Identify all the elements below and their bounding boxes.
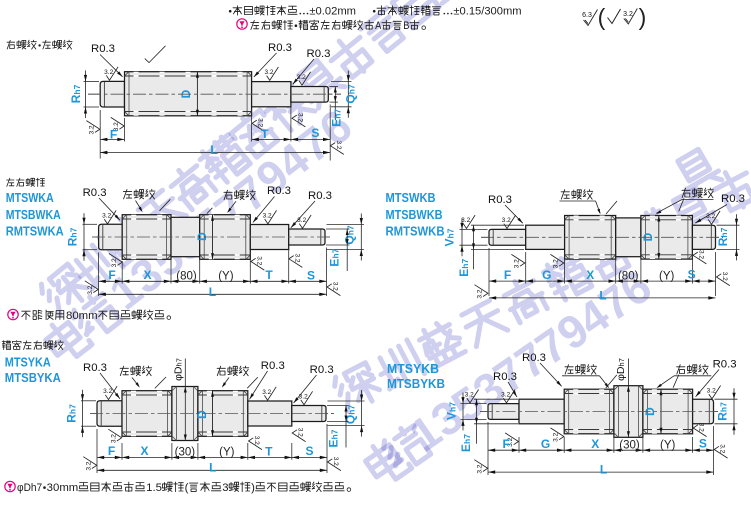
svg-text:F: F [110,127,117,141]
svg-text:Eh7: Eh7 [459,434,473,452]
svg-text:3.2: 3.2 [87,285,94,294]
svg-text:L: L [600,462,607,476]
svg-text:Rh7: Rh7 [716,227,730,246]
svg-text:R0.3: R0.3 [713,359,737,371]
svg-text:R0.3: R0.3 [488,194,512,206]
svg-text:Qh7: Qh7 [343,84,357,104]
svg-text:): ) [639,4,647,30]
svg-text:3.2: 3.2 [88,125,95,134]
svg-text:L: L [599,288,606,302]
svg-text:Rh7: Rh7 [65,404,79,423]
svg-text:X: X [591,437,599,451]
svg-text:R0.3: R0.3 [261,360,285,372]
svg-text:MTSBYKA: MTSBYKA [5,370,61,385]
svg-text:D: D [641,232,655,241]
svg-text:3.2: 3.2 [255,256,262,265]
svg-text:R0.3: R0.3 [308,190,332,202]
svg-text:R0.3: R0.3 [83,187,107,199]
svg-text:(30): (30) [619,439,640,451]
svg-text:(30): (30) [175,446,196,458]
svg-text:3.2: 3.2 [697,250,704,259]
svg-text:3.2: 3.2 [721,272,728,281]
svg-text:Eh7: Eh7 [330,109,344,127]
svg-text:6.3: 6.3 [582,12,592,19]
svg-text:MTSBWKB: MTSBWKB [386,207,443,222]
svg-text:MTSYKA: MTSYKA [5,355,51,370]
svg-text:3.2: 3.2 [253,436,260,445]
svg-text:3.2: 3.2 [461,217,470,224]
svg-text:R0.3: R0.3 [721,193,745,205]
svg-text:Vh7: Vh7 [445,402,459,420]
svg-text:3.2: 3.2 [297,217,306,224]
svg-text:3.2: 3.2 [111,258,118,267]
svg-text:(Y): (Y) [219,446,235,458]
svg-text:R0.3: R0.3 [493,371,517,383]
svg-text:Rh7: Rh7 [69,84,83,103]
svg-text:MTSBWKA: MTSBWKA [6,207,61,222]
svg-text:3.2: 3.2 [719,444,726,453]
svg-text:1.5: 1.5 [146,482,162,494]
svg-text:3.2: 3.2 [296,113,303,122]
svg-text:(Y): (Y) [218,271,234,283]
svg-text:R0.3: R0.3 [522,352,546,364]
svg-text:R0.3: R0.3 [83,362,107,374]
svg-text:X: X [140,444,148,458]
svg-text:3.2: 3.2 [293,253,300,262]
svg-text:3.2: 3.2 [332,457,339,466]
svg-text:G: G [542,268,551,282]
svg-text:F: F [108,268,115,282]
svg-text:G: G [541,437,550,451]
svg-text:Qh7: Qh7 [343,225,357,245]
svg-text:D: D [195,232,209,241]
svg-text:3.2: 3.2 [698,423,705,432]
svg-text:S: S [688,268,696,282]
svg-text:RMTSWKB: RMTSWKB [386,224,445,239]
svg-text:S: S [305,444,313,458]
svg-text:±0.02mm: ±0.02mm [309,6,356,18]
svg-text:3.2: 3.2 [103,388,112,395]
svg-text:3.2: 3.2 [706,213,715,220]
svg-text:F: F [503,437,510,451]
svg-text:L: L [209,461,216,475]
svg-text:3.2: 3.2 [552,259,559,268]
svg-text:MTSBYKB: MTSBYKB [387,376,445,391]
svg-text:(80): (80) [176,271,197,283]
svg-text:MTSWKA: MTSWKA [6,190,54,205]
svg-text:Vh7: Vh7 [443,228,457,246]
svg-text:S: S [699,437,707,451]
svg-text:3.2: 3.2 [262,389,271,396]
svg-text:T: T [261,127,269,141]
svg-text:(: ( [598,4,606,30]
svg-text:φDh7: φDh7 [173,358,185,381]
svg-text:φDh7: φDh7 [17,482,42,494]
svg-text:L: L [209,285,216,299]
svg-text:3.2: 3.2 [335,140,342,149]
svg-text:φDh7: φDh7 [615,358,627,381]
svg-text:3.2: 3.2 [553,432,560,441]
svg-text:MTSWKB: MTSWKB [386,190,436,205]
svg-text:3.2: 3.2 [476,464,483,473]
svg-text:3.2: 3.2 [85,461,92,470]
svg-text:3.2: 3.2 [102,213,111,220]
svg-text:3.2: 3.2 [513,259,520,268]
svg-text:3.2: 3.2 [623,11,633,18]
svg-text:3.2: 3.2 [502,217,511,224]
svg-text:3.2: 3.2 [477,289,484,298]
svg-text:R0.3: R0.3 [310,364,334,376]
svg-text:3.2: 3.2 [110,434,117,443]
svg-text:3.2: 3.2 [297,428,304,437]
svg-text:Eh7: Eh7 [327,429,341,447]
svg-text:X: X [143,268,151,282]
svg-text:S: S [307,269,315,283]
svg-text:±0.15/300mm: ±0.15/300mm [453,6,521,18]
svg-text:Eh7: Eh7 [327,248,341,266]
svg-text:F: F [504,268,511,282]
svg-text:3: 3 [222,482,228,494]
svg-text:3.2: 3.2 [331,282,338,291]
svg-text:T: T [265,444,273,458]
svg-text:3.2: 3.2 [297,74,306,81]
svg-text:3.2: 3.2 [264,69,273,76]
svg-text:R0.3: R0.3 [91,43,115,55]
svg-text:MTSYKB: MTSYKB [387,361,439,376]
svg-text:3.2: 3.2 [465,392,474,399]
svg-text:(Y): (Y) [659,271,675,283]
svg-text:R0.3: R0.3 [268,42,292,54]
svg-text:T: T [265,268,273,282]
svg-text:): ) [251,482,255,494]
svg-text:3.2: 3.2 [707,388,716,395]
svg-text:D: D [195,410,209,419]
svg-text:R0.3: R0.3 [267,185,291,197]
svg-text:F: F [108,444,115,458]
svg-text:X: X [586,268,594,282]
svg-text:80mm: 80mm [66,310,98,322]
svg-text:RMTSWKA: RMTSWKA [6,224,64,239]
svg-text:3.2: 3.2 [263,212,272,219]
svg-text:(Y): (Y) [660,439,676,451]
svg-text:L: L [210,143,217,157]
svg-text:30mm: 30mm [47,482,79,494]
svg-text:3.2: 3.2 [299,393,308,400]
svg-text:Rh7: Rh7 [66,227,80,246]
svg-text:(80): (80) [618,271,639,283]
svg-text:3.2: 3.2 [104,69,113,76]
svg-text:B: B [403,20,409,32]
svg-text:3.2: 3.2 [501,392,510,399]
svg-text:Eh7: Eh7 [457,259,471,277]
svg-text:A: A [375,20,382,32]
svg-text:S: S [311,126,319,140]
svg-text:R0.3: R0.3 [307,48,331,60]
svg-text:(: ( [185,482,189,494]
